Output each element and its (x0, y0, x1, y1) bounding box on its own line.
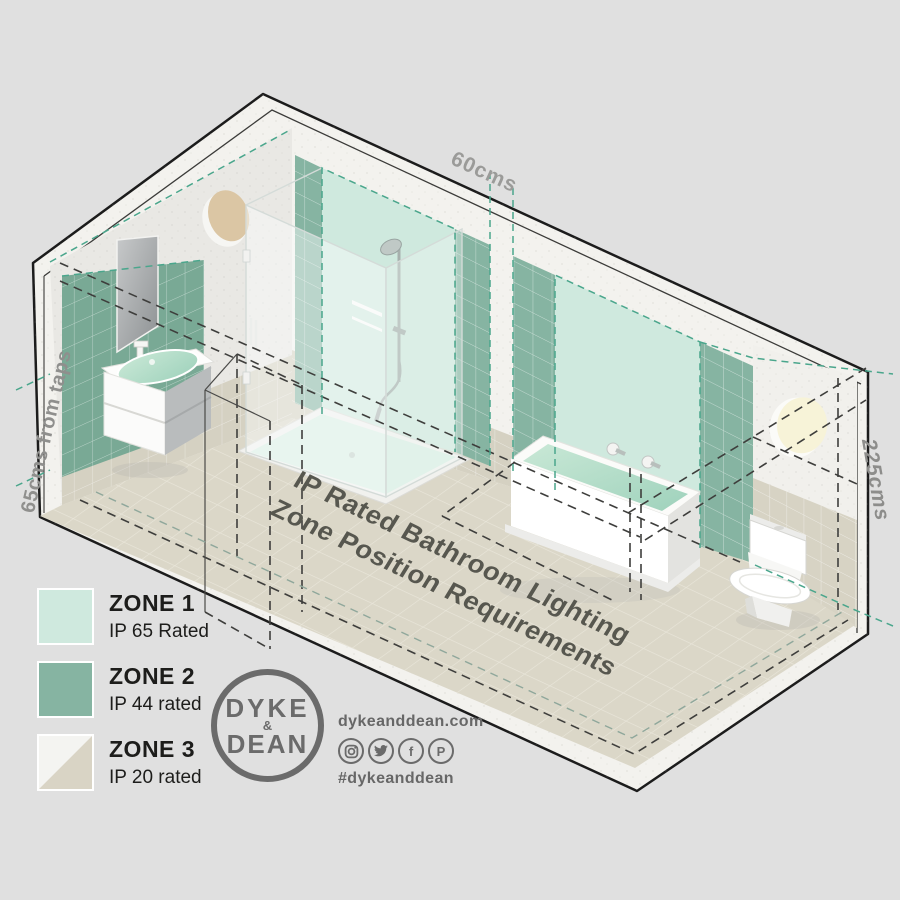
facebook-icon: f (398, 738, 424, 764)
brand-hashtag: #dykeanddean (338, 770, 484, 788)
pinterest-icon: P (428, 738, 454, 764)
legend-zone2-rating: IP 44 rated (109, 694, 202, 716)
legend-zone3-rating: IP 20 rated (109, 767, 202, 789)
website-url: dykeanddean.com (338, 713, 484, 731)
legend-zone2-label: ZONE 2 (109, 663, 202, 690)
brand-block: dykeanddean.com f P #dykeanddean (338, 713, 484, 788)
legend-zone3-label: ZONE 3 (109, 736, 202, 763)
legend-zone1-label: ZONE 1 (109, 590, 209, 617)
logo-text-top: DYKE (225, 696, 309, 720)
social-icons-row: f P (338, 738, 484, 764)
legend-swatch-zone3 (37, 734, 94, 791)
legend-zone1-rating: IP 65 Rated (109, 621, 209, 643)
dyke-and-dean-logo: DYKE & DEAN (211, 669, 324, 782)
logo-text-bottom: DEAN (227, 732, 309, 756)
instagram-icon (338, 738, 364, 764)
legend-swatch-zone1 (37, 588, 94, 645)
legend-row-zone1: ZONE 1 IP 65 Rated (37, 588, 277, 645)
infographic-canvas: 60cms 65cms from taps 225cms IP Rated Ba… (0, 0, 900, 900)
twitter-icon (368, 738, 394, 764)
legend-swatch-zone2 (37, 661, 94, 718)
